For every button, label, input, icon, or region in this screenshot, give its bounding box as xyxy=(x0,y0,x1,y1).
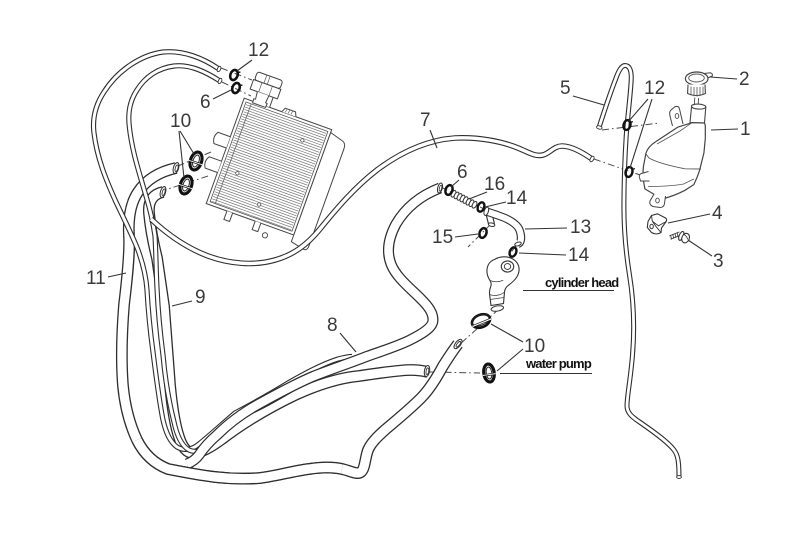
svg-text:5: 5 xyxy=(560,78,571,99)
svg-text:9: 9 xyxy=(195,287,206,308)
svg-text:12: 12 xyxy=(248,40,269,61)
svg-text:3: 3 xyxy=(713,251,724,272)
svg-text:15: 15 xyxy=(432,227,453,248)
svg-text:14: 14 xyxy=(568,245,590,266)
svg-text:16: 16 xyxy=(484,174,505,195)
svg-text:12: 12 xyxy=(644,78,665,99)
svg-text:10: 10 xyxy=(170,111,191,132)
svg-text:2: 2 xyxy=(739,69,750,90)
svg-text:cylinder head: cylinder head xyxy=(545,275,619,290)
svg-text:13: 13 xyxy=(570,217,591,238)
svg-text:water pump: water pump xyxy=(525,356,592,371)
svg-text:1: 1 xyxy=(740,119,751,140)
svg-text:11: 11 xyxy=(86,268,106,289)
svg-text:6: 6 xyxy=(200,92,211,113)
svg-text:4: 4 xyxy=(712,203,723,224)
svg-text:8: 8 xyxy=(327,315,338,336)
svg-text:14: 14 xyxy=(506,188,528,209)
svg-text:10: 10 xyxy=(524,336,545,357)
svg-text:7: 7 xyxy=(420,110,431,131)
